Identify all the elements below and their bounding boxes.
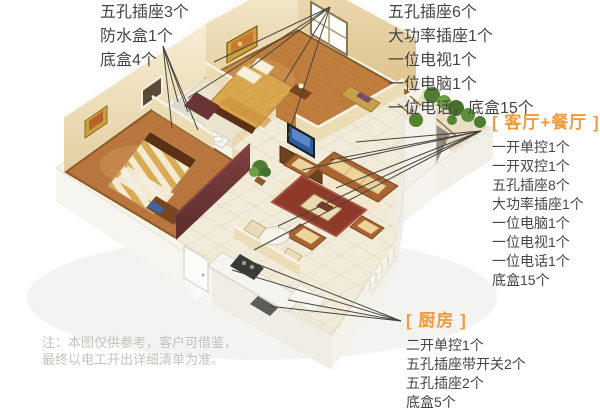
annotation-item: 五孔插座带开关2个 — [406, 355, 526, 374]
annotation-item: 五孔插座6个 — [388, 1, 534, 25]
annotation-living-dining-list: [ 客厅+餐厅 ] 一开单控1个 一开双控1个 五孔插座8个 大功率插座1个 一… — [492, 112, 600, 290]
annotation-item: 大功率插座1个 — [388, 25, 534, 49]
annotation-kitchen-list: [ 厨房 ] 二开单控1个 五孔插座带开关2个 五孔插座2个 底盒5个 — [406, 310, 526, 410]
annotation-item: 五孔插座8个 — [492, 176, 600, 195]
disclaimer-note: 注：本图仅供参考，客户可借鉴， 最终以电工开出详细清单为准。 — [42, 334, 237, 368]
annotation-item: 二开单控1个 — [406, 336, 526, 355]
disclaimer-line: 注：本图仅供参考，客户可借鉴， — [42, 334, 237, 351]
annotation-item: 一位电脑1个 — [388, 73, 534, 97]
annotation-bathroom-list: 五孔插座3个 防水盒1个 底盒4个 — [100, 1, 189, 73]
annotation-section-title: [ 客厅+餐厅 ] — [492, 112, 600, 134]
annotation-item: 五孔插座3个 — [100, 1, 189, 25]
annotation-master-bedroom-list: 五孔插座6个 大功率插座1个 一位电视1个 一位电脑1个 一位电话，底盒15个 — [388, 1, 534, 121]
annotation-item: 五孔插座2个 — [406, 374, 526, 393]
annotation-item: 一位电话1个 — [492, 252, 600, 271]
annotation-item: 大功率插座1个 — [492, 195, 600, 214]
annotation-item: 底盒5个 — [406, 393, 526, 410]
annotation-item: 一位电视1个 — [388, 49, 534, 73]
annotation-section-title: [ 厨房 ] — [406, 310, 526, 332]
annotation-item: 一位电视1个 — [492, 233, 600, 252]
annotation-item: 底盒4个 — [100, 49, 189, 73]
disclaimer-line: 最终以电工开出详细清单为准。 — [42, 351, 237, 368]
annotation-item: 底盒15个 — [492, 271, 600, 290]
annotation-item: 一位电脑1个 — [492, 214, 600, 233]
annotation-item: 一开双控1个 — [492, 157, 600, 176]
floorplan-diagram: 五孔插座3个 防水盒1个 底盒4个 五孔插座6个 大功率插座1个 一位电视1个 … — [0, 0, 600, 410]
annotation-item: 防水盒1个 — [100, 25, 189, 49]
annotation-item: 一开单控1个 — [492, 138, 600, 157]
